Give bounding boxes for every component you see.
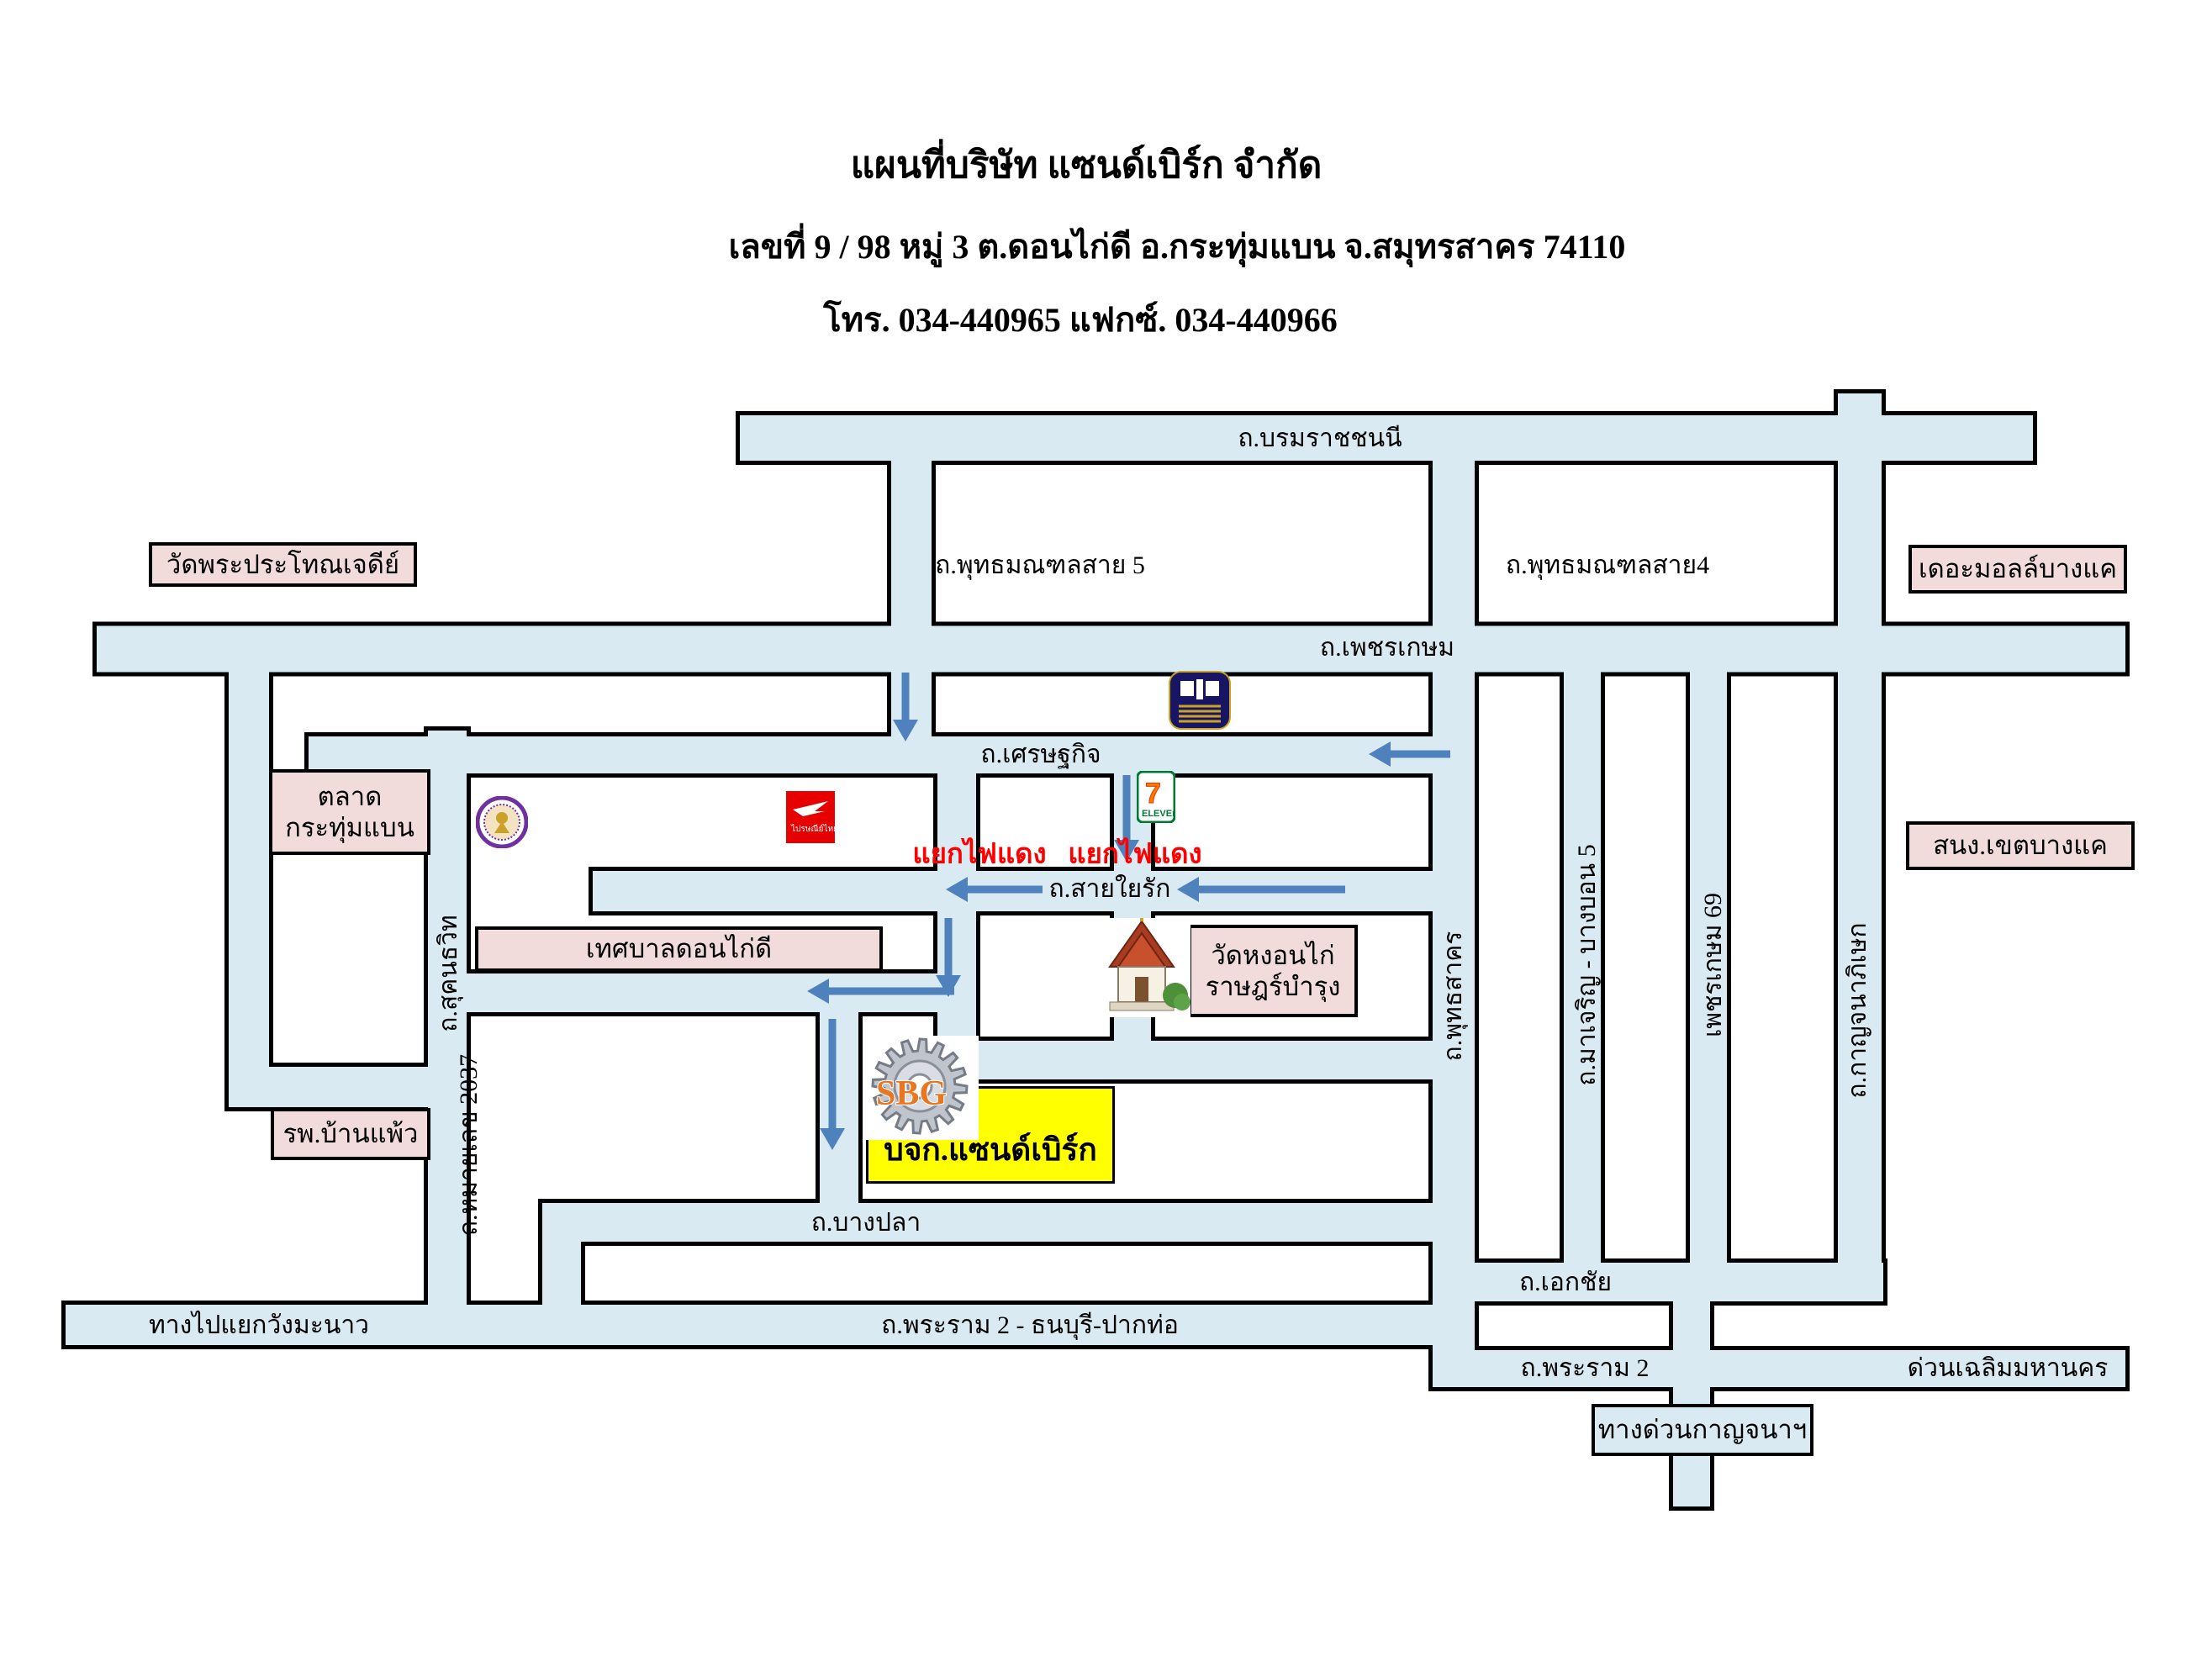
road-label-setthakit: ถ.เศรษฐกิจ: [980, 742, 1101, 768]
seven-eleven-logo: 7 ELEVEn: [1137, 771, 1175, 823]
gear-icon: SBG: [864, 1036, 979, 1140]
place-label-wat-ngon-kai-line2: ราษฎร์บำรุง: [1206, 971, 1341, 1002]
place-label-the-mall-bangkhae: เดอะมอลล์บางแค: [1919, 553, 2117, 584]
seven-eleven-7-text: 7: [1145, 778, 1161, 810]
road-label-kanchanaphisek: ถ.กาญจนาภิเษก: [1845, 922, 1871, 1098]
place-label-banphaeo-hospital: รพ.บ้านแพ้ว: [283, 1118, 419, 1149]
company-location-map: แผนที่บริษัท แซนด์เบิร์ก จำกัด เลขที่ 9 …: [0, 0, 2212, 1662]
place-label-talat-line2: กระทุ่มแบน: [285, 812, 414, 843]
road-label-saiyairak: ถ.สายใยรัก: [1049, 877, 1171, 902]
place-box-wat-phra-prathon: วัดพระประโทณเจดีย์: [149, 542, 417, 587]
road-label-bangpla: ถ.บางปลา: [811, 1211, 921, 1236]
place-label-bangkhae-district-office: สนง.เขตบางแค: [1933, 830, 2108, 861]
road-label-borommaratchachonnani: ถ.บรมราชชนนี: [1238, 426, 1402, 451]
company-logo-text: SBG: [876, 1074, 947, 1113]
road-label-ekkachai: ถ.เอกชัย: [1519, 1270, 1612, 1295]
road-label-sukhonthawit: ถ.สุคนธวิท: [436, 915, 462, 1031]
place-box-thesaban-don-kai-di: เทศบาลดอนไก่ดี: [475, 926, 883, 972]
place-box-banphaeo-hospital: รพ.บ้านแพ้ว: [271, 1108, 430, 1160]
place-box-the-mall-bangkhae: เดอะมอลล์บางแค: [1908, 545, 2127, 594]
thailand-post-logo: ไปรษณีย์ไทย: [786, 791, 835, 843]
place-label-kanchana-expressway: ทางด่วนกาญจนาฯ: [1598, 1414, 1807, 1445]
bangkok-bank-logo: [1169, 671, 1231, 730]
place-box-bangkhae-district-office: สนง.เขตบางแค: [1906, 821, 2135, 870]
place-label-wat-phra-prathon: วัดพระประโทณเจดีย์: [166, 549, 399, 580]
place-label-wat-ngon-kai-line1: วัดหงอนไก่: [1211, 940, 1334, 971]
road-label-phetkasem: ถ.เพชรเกษม: [1320, 636, 1454, 661]
road-label-phutthamonthon-sai4: ถ.พุทธมณฑลสาย4: [1506, 553, 1709, 578]
red-light-junction-label-2: แยกไฟแดง: [1068, 842, 1201, 869]
place-label-thesaban: เทศบาลดอนไก่ดี: [586, 933, 772, 964]
road-label-phutthamonthon-sai5: ถ.พุทธมณฑลสาย 5: [935, 553, 1145, 578]
thai-temple-image: [1093, 918, 1190, 1017]
place-box-talat-krathum-baen: ตลาด กระทุ่มแบน: [269, 769, 430, 855]
place-label-talat-line1: ตลาด: [318, 781, 383, 812]
company-address: เลขที่ 9 / 98 หมู่ 3 ต.ดอนไก่ดี อ.กระทุ่…: [729, 219, 1626, 273]
road-label-rama2-thonburi: ถ.พระราม 2 - ธนบุรี-ปากท่อ: [881, 1313, 1179, 1338]
krathum-baen-seal-icon: [476, 796, 528, 848]
map-title: แผนที่บริษัท แซนด์เบิร์ก จำกัด: [851, 135, 1322, 194]
place-box-wat-ngon-kai: วัดหงอนไก่ ราษฎร์บำรุง: [1188, 925, 1358, 1017]
road-label-macharoen: ถ.มาเจริญ - บางบอน 5: [1575, 844, 1600, 1085]
road-label-chalerm-mahanakhon: ด่วนเฉลิมมหานคร: [1908, 1356, 2109, 1381]
red-light-junction-label-1: แยกไฟแดง: [912, 842, 1046, 869]
thailand-post-text: ไปรษณีย์ไทย: [790, 824, 835, 834]
road-label-wangmanao: ทางไปแยกวังมะนาว: [149, 1313, 369, 1338]
seven-eleven-eleven-text: ELEVEn: [1142, 809, 1175, 819]
road-label-rama2: ถ.พระราม 2: [1521, 1356, 1650, 1381]
company-phone-fax: โทร. 034-440965 แฟกซ์. 034-440966: [823, 293, 1337, 346]
road-label-phutthasakhon: ถ.พุทธสาคร: [1441, 931, 1466, 1062]
road-label-phetkasem69: เพชรเกษม 69: [1701, 893, 1726, 1037]
road-label-highway-2037: ถ.หมายเลข 2037: [457, 1054, 482, 1236]
place-box-kanchana-expressway: ทางด่วนกาญจนาฯ: [1592, 1404, 1813, 1456]
